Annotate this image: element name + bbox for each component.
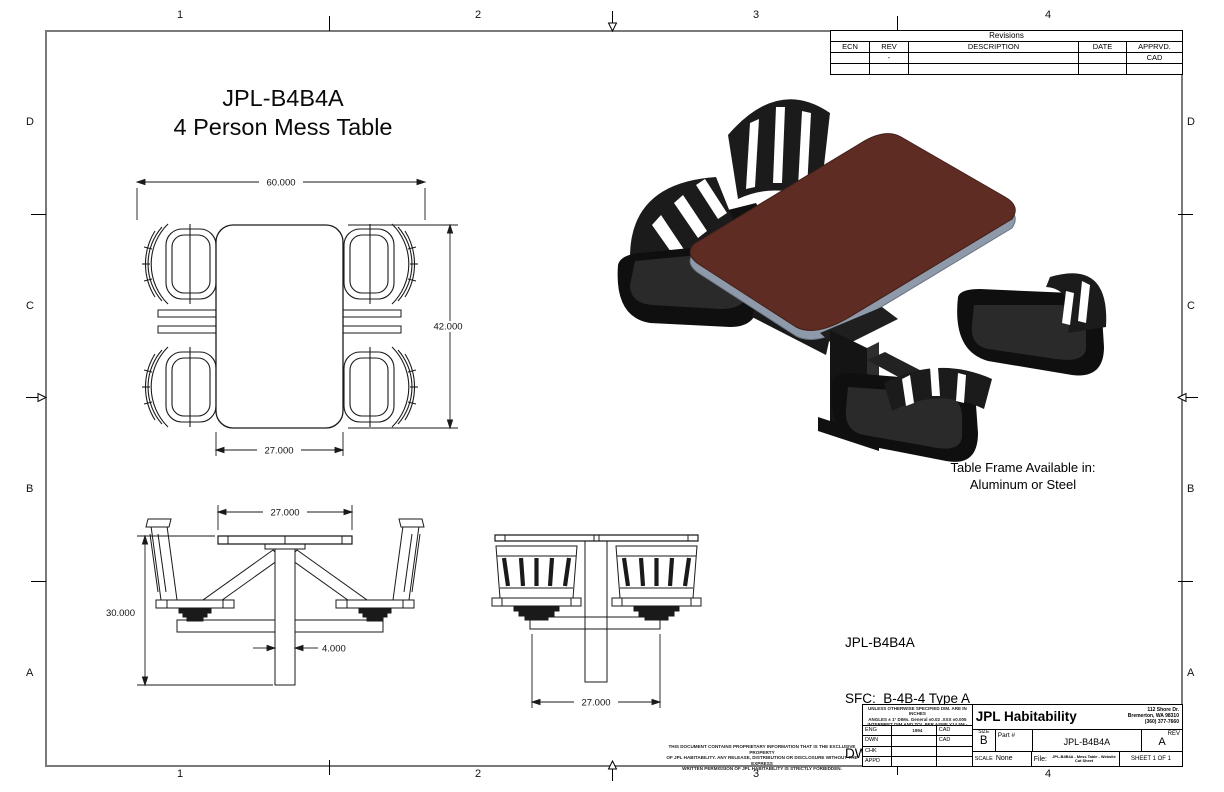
- revisions-col-date: DATE: [1079, 42, 1127, 52]
- tolerance-notes: UNLESS OTHERWISE SPECIFIED DIM. ARE IN I…: [863, 705, 972, 726]
- rev-cell: REV A: [1142, 730, 1182, 751]
- zone-tick: [897, 16, 898, 31]
- frame-material-note: Table Frame Available in: Aluminum or St…: [918, 459, 1128, 493]
- render-chair-bottom: [831, 367, 992, 462]
- company-name: JPL Habitability: [976, 706, 1077, 728]
- zone-label-left-D: D: [26, 116, 34, 128]
- zone-label-bottom-4: 4: [1045, 768, 1051, 780]
- sheet-number-cell: SHEET 1 OF 1: [1120, 752, 1182, 766]
- part-number-row: SIZE B Part # JPL-B4B4A REV A: [973, 730, 1182, 752]
- size-cell: SIZE B: [973, 730, 996, 751]
- dim-plan-overall-width-label: 60.000: [266, 178, 295, 189]
- front-pedestal: [275, 544, 295, 685]
- part-number-label: Part #: [996, 730, 1033, 751]
- side-pedestal: [585, 541, 607, 682]
- plan-chair-top-right: [344, 224, 418, 304]
- revisions-col-rev: REV: [870, 42, 909, 52]
- zone-tick: [329, 16, 330, 31]
- revisions-title: Revisions: [831, 31, 1182, 42]
- revisions-col-description: DESCRIPTION: [909, 42, 1079, 52]
- center-mark-down-icon: [607, 11, 618, 32]
- company-address: 112 Shore Dr. Bremerton, WA 98310 (360) …: [1128, 706, 1179, 728]
- title-block-approvals: UNLESS OTHERWISE SPECIFIED DIM. ARE IN I…: [863, 705, 973, 766]
- side-right-seat: [612, 546, 701, 620]
- dim-front-pedestal-label: 4.000: [322, 644, 346, 655]
- zone-tick: [31, 214, 46, 215]
- zone-label-left-C: C: [26, 300, 34, 312]
- zone-label-right-C: C: [1187, 300, 1195, 312]
- file-value: JPL-B4B4A - Mess Table - Website Cut She…: [1049, 755, 1119, 764]
- side-tabletop: [495, 535, 698, 541]
- scale-value: None: [996, 755, 1013, 762]
- dim-plan-depth-label: 42.000: [433, 322, 462, 333]
- revisions-col-apprvd: APPRVD.: [1127, 42, 1182, 52]
- front-left-seat: [146, 519, 234, 621]
- zone-label-right-B: B: [1187, 483, 1194, 495]
- zone-label-right-A: A: [1187, 667, 1194, 679]
- approval-row-dwn: DWN CAD: [863, 736, 972, 746]
- plan-chair-top-left: [142, 224, 216, 304]
- side-view-drawing: 27.000: [478, 522, 728, 717]
- revisions-col-ecn: ECN: [831, 42, 870, 52]
- zone-tick: [1178, 581, 1193, 582]
- part-info-number: JPL-B4B4A: [845, 634, 970, 653]
- drawing-title-line1: JPL-B4B4A: [118, 84, 448, 113]
- plan-tabletop: [216, 225, 343, 428]
- zone-label-left-A: A: [26, 667, 33, 679]
- zone-label-top-1: 1: [177, 9, 183, 21]
- plan-view-drawing: 60.000 42.000 27.000: [118, 158, 463, 473]
- zone-label-top-3: 3: [753, 9, 759, 21]
- title-block-main: JPL Habitability 112 Shore Dr. Bremerton…: [973, 705, 1182, 766]
- front-view-drawing: 27.000 30.000 4.000: [75, 492, 470, 707]
- proprietary-notice: THIS DOCUMENT CONTAINS PROPRIETARY INFOR…: [664, 744, 860, 772]
- dim-plan-tabletop-width-label: 27.000: [264, 446, 293, 457]
- zone-label-top-2: 2: [475, 9, 481, 21]
- drawing-title: JPL-B4B4A 4 Person Mess Table: [118, 84, 448, 142]
- zone-label-bottom-1: 1: [177, 768, 183, 780]
- side-left-seat: [492, 546, 581, 620]
- part-number-value: JPL-B4B4A: [1033, 730, 1142, 751]
- front-mount-plate: [265, 544, 305, 549]
- drawing-sheet: 1 2 3 4 1 2 3 4 D C B A D C B A Revision…: [0, 0, 1224, 792]
- zone-label-left-B: B: [26, 483, 33, 495]
- front-right-seat: [336, 519, 424, 621]
- revisions-header-row: ECN REV DESCRIPTION DATE APPRVD.: [831, 42, 1182, 53]
- isometric-render: [580, 65, 1110, 465]
- title-block: UNLESS OTHERWISE SPECIFIED DIM. ARE IN I…: [862, 704, 1183, 767]
- zone-tick: [31, 581, 46, 582]
- zone-label-right-D: D: [1187, 116, 1195, 128]
- dim-front-tabletop-width-label: 27.000: [270, 508, 299, 519]
- dim-front-height-label: 30.000: [106, 608, 135, 619]
- render-chair-right: [957, 273, 1106, 375]
- drawing-size: B: [973, 735, 995, 748]
- file-cell: File: JPL-B4B4A - Mess Table - Website C…: [1032, 752, 1120, 766]
- zone-label-top-4: 4: [1045, 9, 1051, 21]
- zone-tick: [329, 760, 330, 775]
- scale-file-row: SCALENone File: JPL-B4B4A - Mess Table -…: [973, 752, 1182, 766]
- approval-row-appd: APPD: [863, 757, 972, 766]
- approval-row-eng: ENG CAD: [863, 726, 972, 736]
- revision-value: A: [1142, 736, 1182, 748]
- center-mark-up-icon: [607, 760, 618, 781]
- zone-tick: [1178, 214, 1193, 215]
- side-base-beam: [530, 617, 660, 629]
- approval-row-chk: CHK: [863, 747, 972, 757]
- front-tabletop: [218, 536, 352, 544]
- center-mark-right-icon: [26, 392, 47, 403]
- center-mark-left-icon: [1177, 392, 1198, 403]
- drawing-title-line2: 4 Person Mess Table: [118, 113, 448, 142]
- dim-side-seat-spacing-label: 27.000: [581, 698, 610, 709]
- revisions-row: - CAD: [831, 53, 1182, 64]
- zone-label-bottom-2: 2: [475, 768, 481, 780]
- plan-chair-bottom-left: [142, 347, 216, 427]
- plan-chair-bottom-right: [344, 347, 418, 427]
- company-row: JPL Habitability 112 Shore Dr. Bremerton…: [973, 705, 1182, 730]
- scale-cell: SCALENone: [973, 752, 1032, 766]
